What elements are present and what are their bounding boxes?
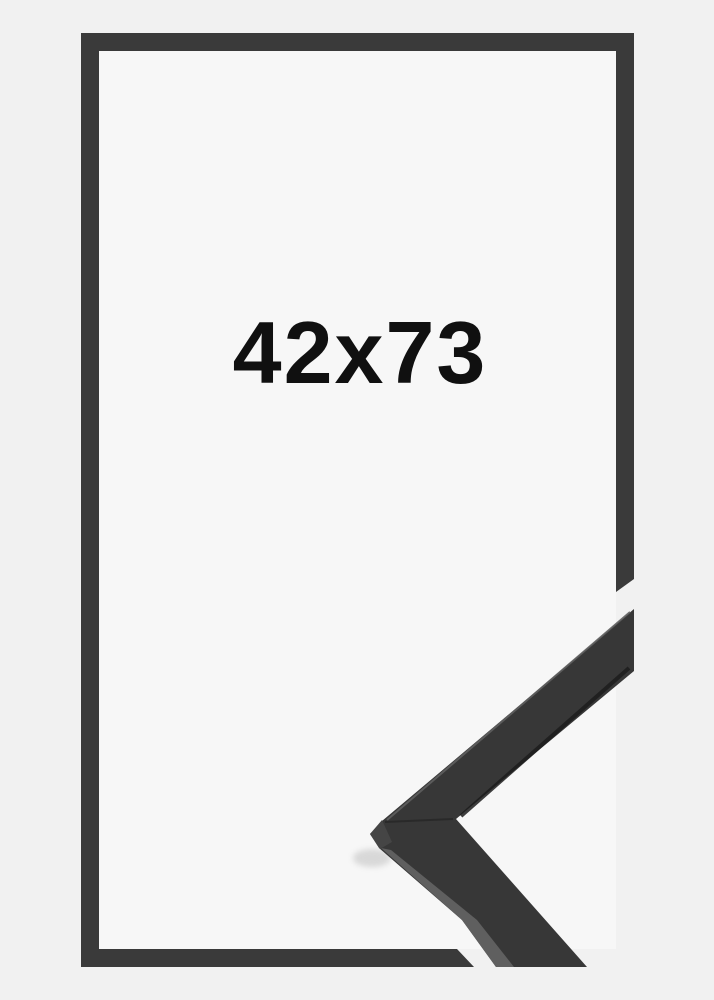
product-image: 42x73 [0, 0, 714, 1000]
frame-illustration [0, 0, 714, 1000]
frame-inner-area [99, 51, 616, 949]
size-label: 42x73 [6, 309, 714, 397]
